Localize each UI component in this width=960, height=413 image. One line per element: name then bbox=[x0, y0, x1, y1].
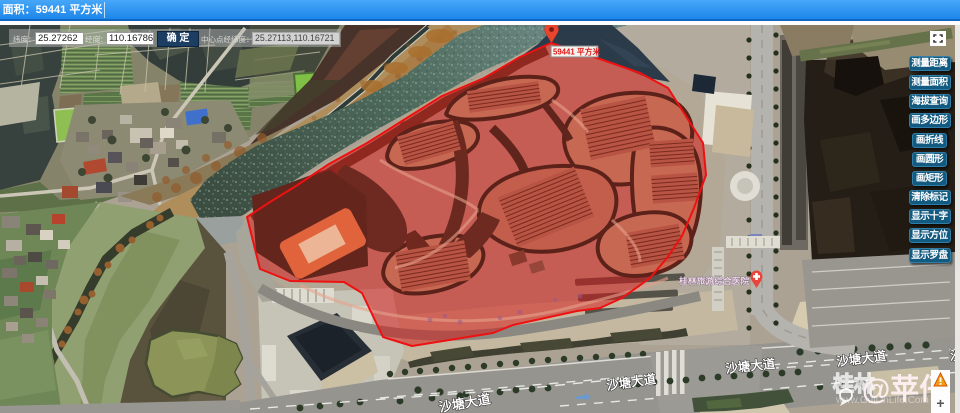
svg-text:59441 平方米: 59441 平方米 bbox=[553, 46, 600, 56]
svg-text:桂林旅游综合医院: 桂林旅游综合医院 bbox=[678, 275, 750, 286]
